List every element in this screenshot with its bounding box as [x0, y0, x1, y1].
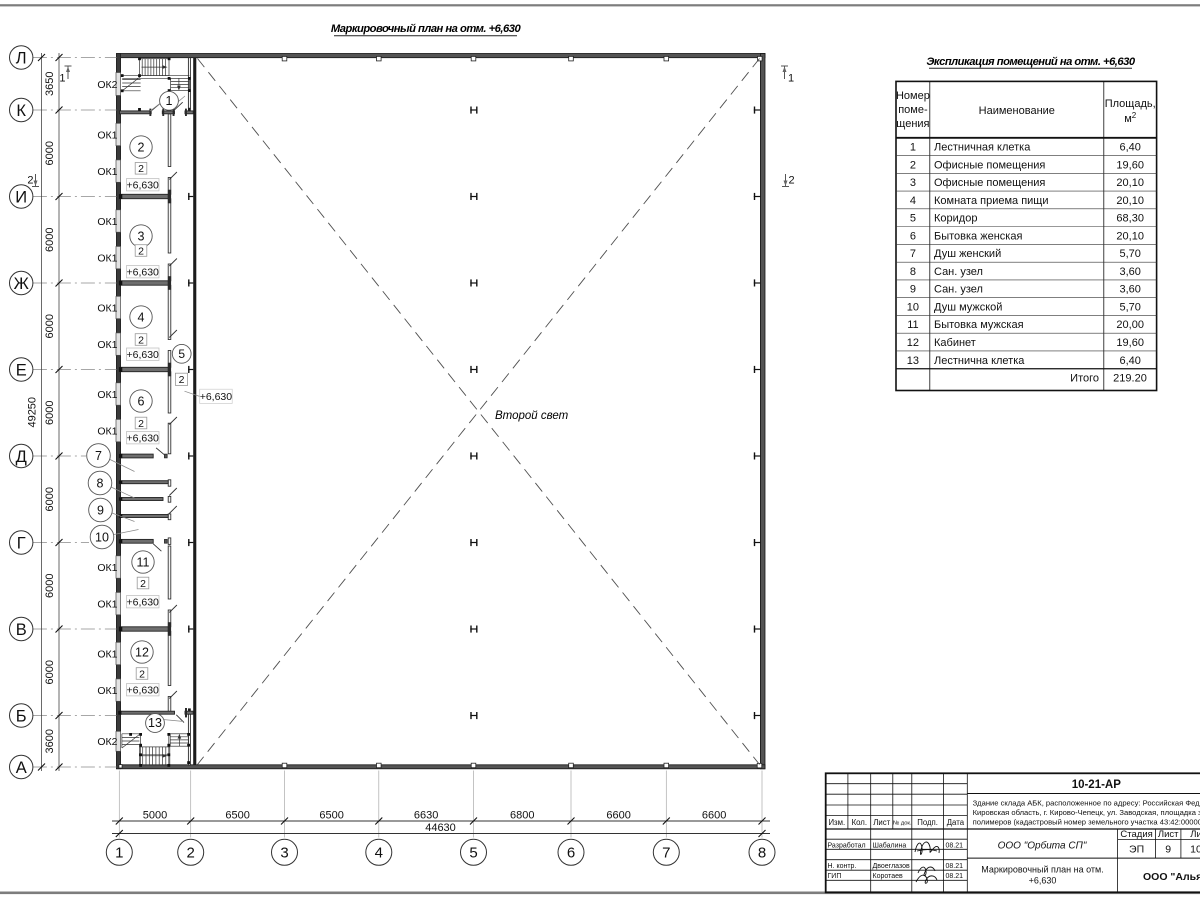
svg-text:1: 1 [166, 94, 173, 108]
svg-text:щения: щения [896, 118, 929, 130]
svg-text:Г: Г [17, 534, 26, 552]
svg-text:+6,630: +6,630 [126, 432, 159, 444]
svg-text:1: 1 [59, 73, 65, 85]
svg-text:Экспликация помещений на отм.: Экспликация помещений на отм. +6,630 [926, 56, 1135, 68]
svg-text:12: 12 [907, 337, 919, 349]
svg-text:6500: 6500 [319, 809, 343, 821]
svg-text:Кол.: Кол. [852, 818, 867, 827]
svg-text:9: 9 [97, 504, 104, 518]
svg-text:Е: Е [16, 361, 27, 379]
svg-text:ЭП: ЭП [1129, 844, 1144, 856]
svg-text:2: 2 [187, 845, 195, 862]
svg-text:10: 10 [95, 531, 109, 545]
svg-text:4: 4 [910, 195, 916, 207]
svg-text:Второй свет: Второй свет [495, 410, 569, 422]
svg-text:Офисные помещения: Офисные помещения [934, 177, 1045, 189]
svg-text:Бытовка женская: Бытовка женская [934, 230, 1022, 242]
svg-text:ОК1: ОК1 [97, 598, 117, 610]
svg-text:11: 11 [137, 556, 150, 570]
svg-text:Комната приема пищи: Комната приема пищи [934, 195, 1049, 207]
svg-text:7: 7 [662, 845, 670, 862]
svg-text:8: 8 [758, 845, 766, 862]
svg-text:Коридор: Коридор [934, 213, 977, 225]
svg-text:Душ мужской: Душ мужской [934, 302, 1002, 314]
svg-text:Дата: Дата [947, 818, 965, 827]
svg-text:Коротаев: Коротаев [873, 873, 904, 880]
svg-text:8: 8 [910, 266, 916, 278]
svg-text:6000: 6000 [44, 574, 56, 598]
svg-text:11: 11 [907, 319, 918, 331]
svg-text:Стадия: Стадия [1120, 829, 1152, 840]
svg-text:+6,630: +6,630 [126, 266, 159, 278]
svg-text:49250: 49250 [27, 397, 39, 428]
svg-text:+6,630: +6,630 [1029, 876, 1057, 886]
svg-text:6600: 6600 [702, 809, 726, 821]
svg-text:Площадь,: Площадь, [1105, 98, 1156, 110]
svg-text:2: 2 [27, 175, 33, 187]
svg-text:6: 6 [567, 845, 575, 862]
svg-text:Лестничная клетка: Лестничная клетка [934, 142, 1031, 154]
svg-text:6000: 6000 [44, 228, 56, 252]
svg-text:4: 4 [375, 845, 383, 862]
svg-text:Д: Д [16, 448, 27, 466]
svg-text:5,70: 5,70 [1119, 302, 1140, 314]
svg-text:Итого: Итого [1070, 373, 1099, 385]
svg-text:Офисные помещения: Офисные помещения [934, 159, 1045, 171]
svg-text:6000: 6000 [44, 660, 56, 684]
svg-text:2: 2 [910, 159, 916, 171]
svg-text:А: А [16, 759, 27, 777]
svg-text:2: 2 [138, 418, 144, 430]
svg-text:2: 2 [138, 245, 144, 257]
svg-text:ОК1: ОК1 [97, 685, 117, 697]
svg-text:6600: 6600 [606, 809, 630, 821]
svg-text:2: 2 [138, 141, 145, 155]
svg-text:5: 5 [469, 845, 477, 862]
svg-text:ОК2: ОК2 [97, 79, 117, 91]
svg-text:20,10: 20,10 [1116, 177, 1144, 189]
svg-text:Кировская область, г. Кирово-Ч: Кировская область, г. Кирово-Чепецк, ул.… [973, 808, 1200, 817]
svg-text:6000: 6000 [44, 314, 56, 338]
svg-text:ОК1: ОК1 [97, 129, 117, 141]
svg-text:ОК2: ОК2 [97, 736, 117, 748]
svg-text:ОК1: ОК1 [97, 252, 117, 264]
svg-text:9: 9 [910, 284, 916, 296]
svg-text:3600: 3600 [44, 729, 56, 753]
svg-text:6: 6 [138, 395, 145, 409]
svg-text:Маркировочный план на отм.: Маркировочный план на отм. [981, 865, 1103, 875]
svg-text:5: 5 [178, 347, 185, 361]
svg-text:20,00: 20,00 [1116, 319, 1144, 331]
svg-text:13: 13 [148, 716, 162, 730]
svg-text:Н. контр.: Н. контр. [828, 863, 857, 870]
svg-text:08.21: 08.21 [946, 863, 964, 870]
svg-text:ОК1: ОК1 [97, 302, 117, 314]
svg-text:полимеров (кадастровый номер з: полимеров (кадастровый номер земельного … [973, 818, 1200, 827]
svg-text:6,40: 6,40 [1119, 355, 1140, 367]
svg-text:ООО "Орбита СП": ООО "Орбита СП" [998, 840, 1087, 852]
svg-text:13: 13 [907, 355, 919, 367]
svg-text:Л: Л [16, 49, 27, 67]
svg-text:20,10: 20,10 [1116, 230, 1144, 242]
svg-text:поме-: поме- [898, 104, 928, 116]
svg-text:Шабалина: Шабалина [873, 841, 907, 849]
svg-text:19,60: 19,60 [1116, 159, 1144, 171]
svg-text:6,40: 6,40 [1119, 142, 1140, 154]
svg-text:Ж: Ж [14, 275, 30, 293]
svg-text:+6,630: +6,630 [126, 349, 159, 361]
svg-text:2: 2 [789, 175, 795, 187]
svg-text:3: 3 [280, 845, 288, 862]
svg-text:Наименование: Наименование [979, 105, 1055, 117]
svg-text:Подп.: Подп. [917, 818, 938, 827]
svg-text:ООО "Альянс: ООО "Альянс [1143, 871, 1200, 883]
svg-text:Кабинет: Кабинет [934, 337, 976, 349]
svg-text:10: 10 [907, 302, 919, 314]
svg-text:ОК1: ОК1 [97, 389, 117, 401]
svg-text:№ док.: № док. [893, 821, 912, 827]
svg-text:1: 1 [910, 142, 916, 154]
svg-text:3: 3 [138, 230, 145, 244]
svg-text:Лист: Лист [1158, 829, 1179, 840]
svg-text:44630: 44630 [425, 822, 456, 834]
svg-text:4: 4 [138, 311, 145, 325]
svg-text:Ли: Ли [1190, 829, 1200, 840]
svg-text:+6,630: +6,630 [126, 179, 159, 191]
svg-text:2: 2 [138, 163, 144, 175]
svg-text:Лестнична клетка: Лестнична клетка [934, 355, 1025, 367]
svg-text:Маркировочный план на отм. +6,: Маркировочный план на отм. +6,630 [331, 23, 522, 35]
svg-text:219.20: 219.20 [1113, 373, 1147, 385]
svg-text:1: 1 [788, 73, 794, 85]
svg-text:12: 12 [135, 646, 149, 660]
svg-text:2: 2 [140, 578, 146, 590]
svg-text:Двоеглазов: Двоеглазов [873, 863, 910, 870]
svg-text:68,30: 68,30 [1116, 213, 1144, 225]
svg-text:ОК1: ОК1 [97, 339, 117, 351]
svg-text:К: К [16, 102, 26, 120]
svg-text:ОК1: ОК1 [97, 425, 117, 437]
svg-text:6000: 6000 [44, 401, 56, 425]
svg-text:3,60: 3,60 [1119, 284, 1140, 296]
svg-text:+6,630: +6,630 [126, 596, 159, 608]
svg-text:3650: 3650 [44, 72, 56, 96]
svg-text:Бытовка мужская: Бытовка мужская [934, 319, 1024, 331]
svg-text:1: 1 [115, 845, 123, 862]
svg-text:Лист: Лист [873, 818, 890, 827]
svg-text:5,70: 5,70 [1119, 248, 1140, 260]
svg-text:10: 10 [1190, 844, 1200, 856]
svg-text:ОК1: ОК1 [97, 216, 117, 228]
svg-text:08.21: 08.21 [946, 873, 964, 880]
svg-text:ГИП: ГИП [828, 873, 842, 880]
svg-text:Сан. узел: Сан. узел [934, 266, 983, 278]
svg-text:6800: 6800 [510, 809, 534, 821]
svg-text:7: 7 [910, 248, 916, 260]
svg-text:6500: 6500 [225, 809, 249, 821]
svg-text:ОК1: ОК1 [97, 648, 117, 660]
svg-text:3: 3 [910, 177, 916, 189]
svg-text:И: И [15, 188, 27, 206]
svg-text:5000: 5000 [143, 809, 167, 821]
svg-text:6: 6 [910, 230, 916, 242]
svg-text:3,60: 3,60 [1119, 266, 1140, 278]
svg-text:2: 2 [139, 668, 145, 680]
svg-text:+6,630: +6,630 [126, 684, 159, 696]
svg-text:Здание склада АБК, расположенн: Здание склада АБК, расположенное по адре… [973, 799, 1200, 808]
svg-text:08.21: 08.21 [946, 842, 964, 849]
svg-text:9: 9 [1165, 844, 1171, 856]
svg-text:8: 8 [97, 477, 104, 491]
svg-text:Номер: Номер [896, 90, 930, 102]
svg-text:ОК1: ОК1 [97, 166, 117, 178]
svg-text:Б: Б [16, 707, 27, 725]
svg-text:Изм.: Изм. [828, 818, 845, 827]
svg-text:ОК1: ОК1 [97, 562, 117, 574]
svg-text:6630: 6630 [414, 809, 438, 821]
svg-text:Душ женский: Душ женский [934, 248, 1001, 260]
svg-text:6000: 6000 [44, 141, 56, 165]
svg-text:10-21-АР: 10-21-АР [1072, 779, 1122, 791]
svg-text:Разработал: Разработал [828, 841, 866, 849]
svg-text:2: 2 [179, 374, 185, 386]
svg-text:6000: 6000 [44, 487, 56, 511]
svg-text:Сан. узел: Сан. узел [934, 284, 983, 296]
svg-text:19,60: 19,60 [1116, 337, 1144, 349]
svg-text:20,10: 20,10 [1116, 195, 1144, 207]
svg-text:В: В [16, 621, 27, 639]
svg-text:5: 5 [910, 213, 916, 225]
svg-text:2: 2 [138, 334, 144, 346]
svg-text:7: 7 [95, 449, 102, 463]
svg-text:+6,630: +6,630 [200, 391, 233, 403]
